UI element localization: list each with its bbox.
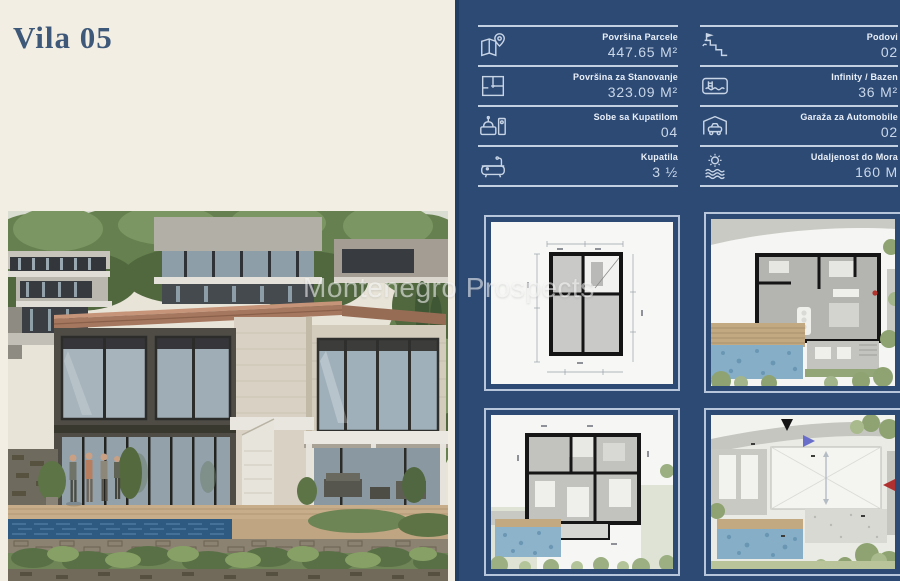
spec-value: 02 (881, 44, 898, 60)
spec-value: 04 (661, 124, 678, 140)
spec-row-sobe-sa-kupatilom: Sobe sa Kupatilom 04 (478, 105, 678, 145)
garage-icon (700, 111, 736, 141)
villa-render-illustration (8, 211, 448, 581)
roof-plan-thumbnail (704, 408, 900, 576)
spec-label: Infinity / Bazen (831, 72, 898, 82)
spec-row-kupatila: Kupatila 3 ½ (478, 145, 678, 187)
pool-icon (700, 71, 736, 101)
spec-value: 447.65 M² (608, 44, 678, 60)
spec-label: Kupatila (641, 152, 678, 162)
upper-floor-plan-drawing (491, 415, 673, 569)
spec-label: Udaljenost do Mora (811, 152, 898, 162)
spec-row-garaza: Garaža za Automobile 02 (700, 105, 898, 145)
specs-column-right: Podovi 02 Infinity / Bazen 36 M² (700, 25, 898, 187)
specs-panel: Površina Parcele 447.65 M² Površina za S… (455, 0, 900, 581)
villa-exterior-rendering (8, 211, 448, 581)
bathtub-icon (478, 151, 514, 181)
spec-label: Sobe sa Kupatilom (594, 112, 678, 122)
spec-row-infinity-bazen: Infinity / Bazen 36 M² (700, 65, 898, 105)
spec-label: Površina za Stanovanje (573, 72, 678, 82)
spec-label: Podovi (867, 32, 898, 42)
spec-row-podovi: Podovi 02 (700, 25, 898, 65)
spec-label: Garaža za Automobile (800, 112, 898, 122)
stairs-icon (700, 31, 736, 61)
specs-column-left: Površina Parcele 447.65 M² Površina za S… (478, 25, 678, 187)
spec-value: 160 M (855, 164, 898, 180)
floor-plan-icon (478, 71, 514, 101)
spec-row-udaljenost-do-mora: Udaljenost do Mora 160 M (700, 145, 898, 187)
basement-plan-thumbnail (484, 215, 680, 391)
basement-plan-drawing (491, 222, 673, 384)
spec-row-povrsina-parcele: Površina Parcele 447.65 M² (478, 25, 678, 65)
spec-label: Površina Parcele (602, 32, 678, 42)
spec-row-povrsina-za-stanovanje: Površina za Stanovanje 323.09 M² (478, 65, 678, 105)
map-area-icon (478, 31, 514, 61)
ground-floor-plan-drawing (711, 219, 895, 386)
roof-plan-drawing (711, 415, 895, 569)
spec-value: 36 M² (858, 84, 898, 100)
sun-waves-icon (700, 151, 736, 181)
spec-value: 3 ½ (652, 164, 678, 180)
page-title: Vila 05 (13, 20, 113, 56)
upper-floor-plan-thumbnail (484, 408, 680, 576)
spec-value: 323.09 M² (608, 84, 678, 100)
spec-value: 02 (881, 124, 898, 140)
brochure-left-panel: Vila 05 (0, 0, 455, 581)
bedroom-icon (478, 111, 514, 141)
ground-floor-plan-thumbnail (704, 212, 900, 393)
